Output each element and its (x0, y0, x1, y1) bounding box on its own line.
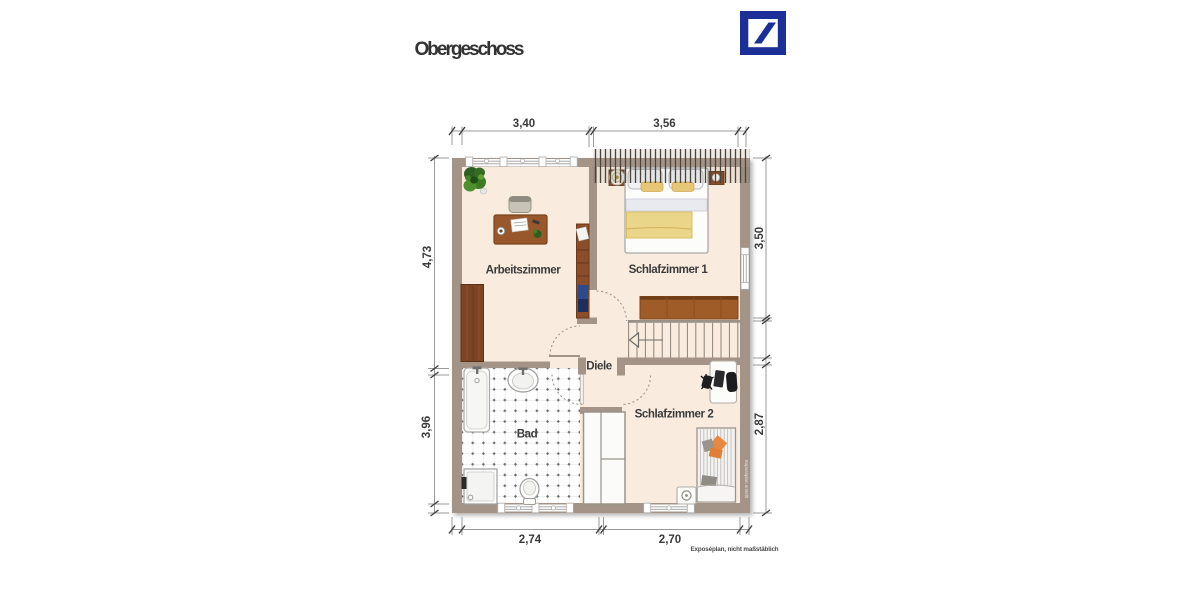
svg-text:2,70: 2,70 (659, 534, 681, 546)
svg-text:3,56: 3,56 (653, 118, 675, 130)
svg-text:Bad: Bad (517, 428, 538, 441)
svg-text:2,74: 2,74 (519, 534, 542, 546)
svg-text:Exposéplan, nicht maßstäblich: Exposéplan, nicht maßstäblich (690, 546, 778, 553)
svg-text:Schlafzimmer 1: Schlafzimmer 1 (629, 263, 709, 276)
svg-text:4,73: 4,73 (422, 246, 434, 268)
svg-text:3,40: 3,40 (513, 118, 535, 130)
svg-text:3,50: 3,50 (754, 227, 766, 249)
svg-text:Obergeschoss: Obergeschoss (415, 39, 524, 60)
svg-text:Schlafzimmer 2: Schlafzimmer 2 (635, 408, 714, 421)
svg-text:Arbeitszimmer: Arbeitszimmer (486, 264, 562, 277)
svg-text:3,96: 3,96 (421, 416, 433, 438)
svg-text:2,87: 2,87 (754, 413, 766, 435)
svg-text:Exposéplan erstellt: Exposéplan erstellt (744, 460, 749, 499)
svg-text:Diele: Diele (586, 360, 612, 373)
